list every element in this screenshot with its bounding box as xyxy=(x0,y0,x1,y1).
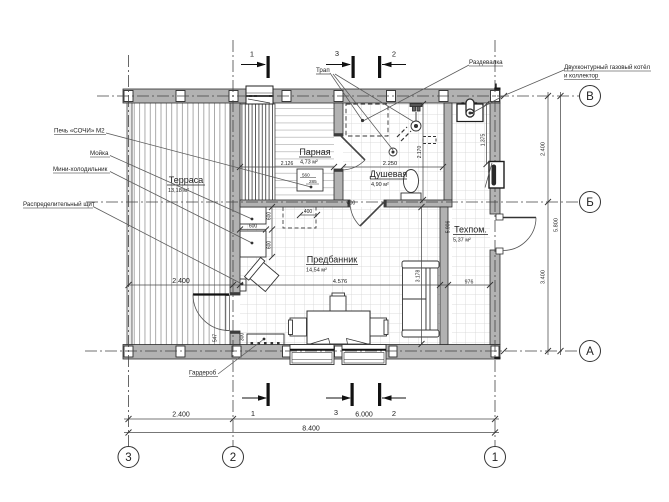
svg-text:Гардероб: Гардероб xyxy=(189,370,217,377)
svg-text:4,90 м²: 4,90 м² xyxy=(371,182,389,188)
svg-text:Терраса: Терраса xyxy=(169,175,204,185)
svg-text:Печь «СОЧИ» М2: Печь «СОЧИ» М2 xyxy=(54,128,105,135)
svg-text:285: 285 xyxy=(309,179,317,184)
svg-text:Техпом.: Техпом. xyxy=(454,225,487,235)
svg-text:600: 600 xyxy=(249,224,258,230)
svg-text:8.400: 8.400 xyxy=(302,426,320,433)
svg-text:В: В xyxy=(586,91,594,103)
svg-text:976: 976 xyxy=(465,280,474,286)
svg-text:547: 547 xyxy=(213,334,219,343)
svg-text:1: 1 xyxy=(251,409,255,418)
svg-text:2.250: 2.250 xyxy=(383,161,398,167)
svg-text:Душевая: Душевая xyxy=(370,169,408,179)
svg-text:3: 3 xyxy=(125,452,131,464)
svg-text:600: 600 xyxy=(267,212,273,221)
svg-text:2: 2 xyxy=(230,452,236,464)
svg-text:1: 1 xyxy=(250,50,254,59)
svg-text:14,54 м²: 14,54 м² xyxy=(306,268,327,274)
svg-text:Трап: Трап xyxy=(316,67,330,74)
svg-text:400: 400 xyxy=(347,201,356,207)
svg-text:1: 1 xyxy=(492,452,498,464)
svg-text:2.170: 2.170 xyxy=(417,146,423,159)
svg-text:Б: Б xyxy=(586,197,594,209)
svg-text:3.400: 3.400 xyxy=(541,270,547,284)
svg-text:и коллектор: и коллектор xyxy=(564,73,599,80)
svg-text:2: 2 xyxy=(392,50,396,59)
svg-text:3.178: 3.178 xyxy=(416,270,422,283)
svg-text:5.906: 5.906 xyxy=(446,221,452,234)
svg-text:2: 2 xyxy=(392,409,396,418)
svg-text:5.800: 5.800 xyxy=(554,218,560,232)
svg-text:Двухконтурный газовый котёл: Двухконтурный газовый котёл xyxy=(564,64,651,71)
svg-text:4.576: 4.576 xyxy=(333,279,348,285)
svg-text:5,37 м²: 5,37 м² xyxy=(453,238,471,244)
svg-text:4,73 м²: 4,73 м² xyxy=(300,160,318,166)
svg-text:1.375: 1.375 xyxy=(481,134,487,147)
svg-text:Парная: Парная xyxy=(299,147,330,157)
svg-text:300: 300 xyxy=(240,333,246,342)
svg-text:Предбанник: Предбанник xyxy=(307,255,357,265)
svg-text:560: 560 xyxy=(302,173,310,178)
svg-text:3: 3 xyxy=(335,49,339,58)
svg-text:2.400: 2.400 xyxy=(172,412,190,419)
svg-text:600: 600 xyxy=(267,241,273,250)
svg-text:3: 3 xyxy=(334,408,338,417)
svg-text:6.000: 6.000 xyxy=(355,412,373,419)
svg-text:Мини-холодильник: Мини-холодильник xyxy=(53,166,108,173)
svg-text:400: 400 xyxy=(304,209,313,215)
svg-text:Мойка: Мойка xyxy=(90,150,109,157)
svg-text:2.400: 2.400 xyxy=(172,278,190,285)
svg-text:Распределительный щит: Распределительный щит xyxy=(23,201,95,208)
svg-text:Раздевалка: Раздевалка xyxy=(469,59,503,66)
svg-text:2.126: 2.126 xyxy=(281,161,294,167)
svg-text:А: А xyxy=(586,346,594,358)
svg-text:2.400: 2.400 xyxy=(541,142,547,156)
svg-text:13,18 м²: 13,18 м² xyxy=(168,188,189,194)
